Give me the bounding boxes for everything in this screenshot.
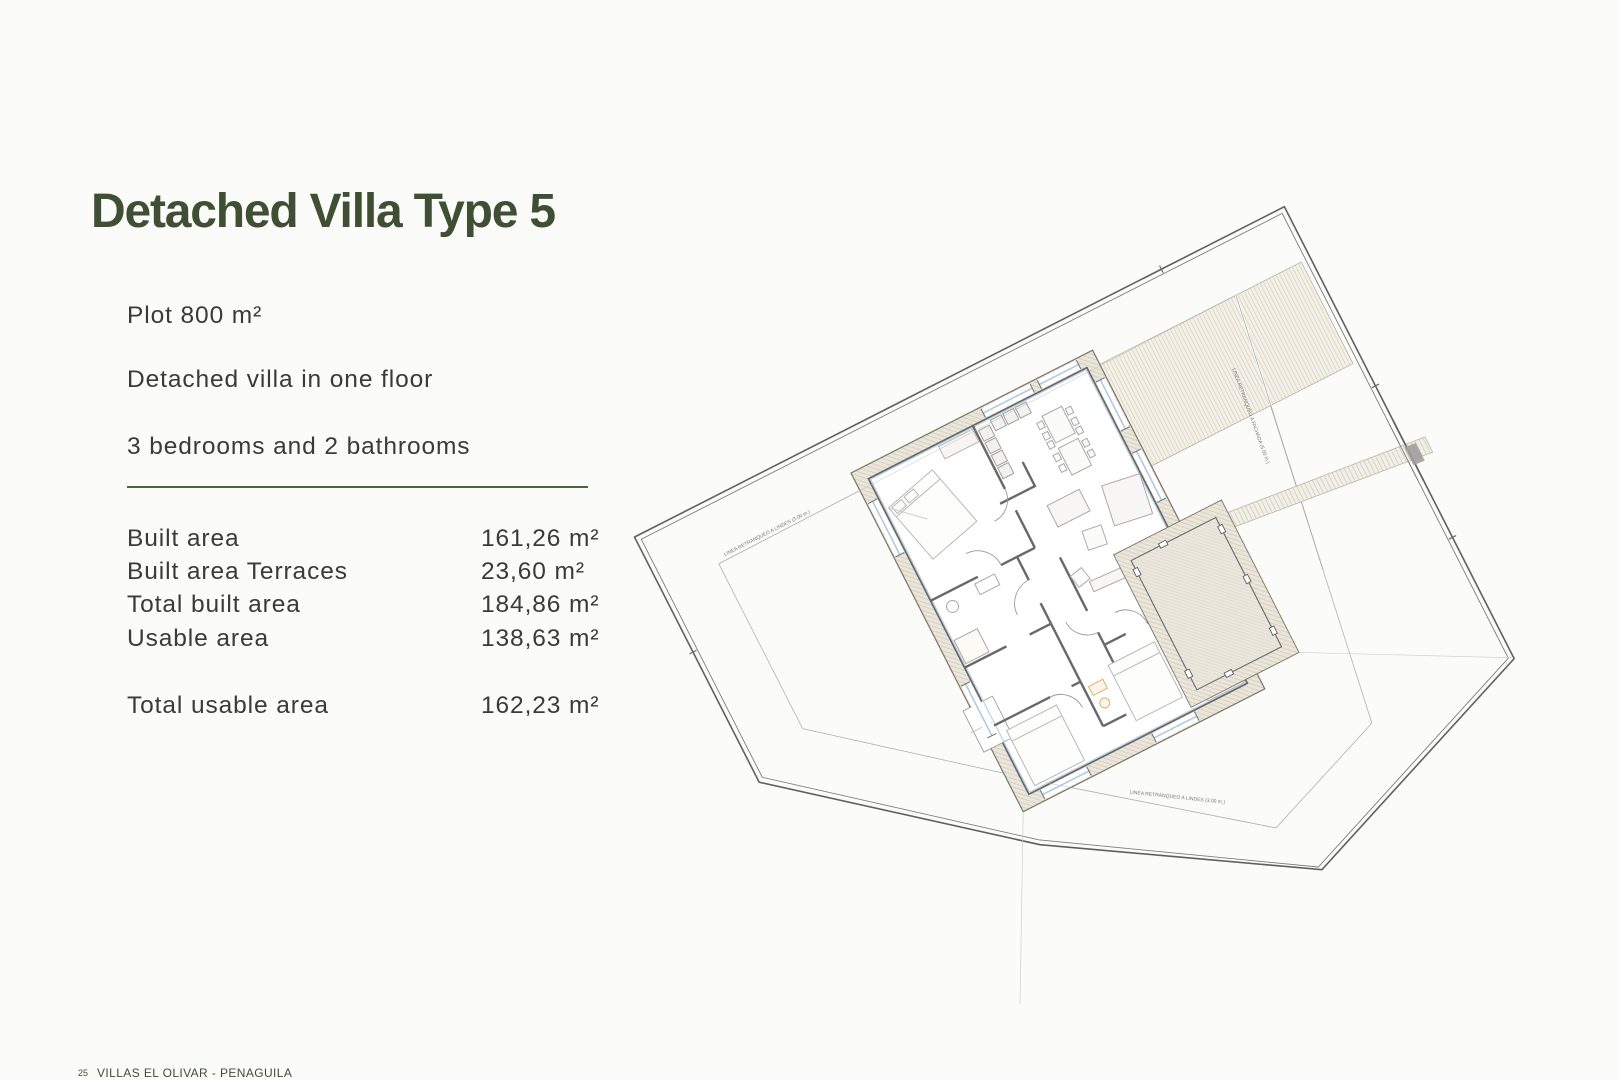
svg-text:LINEA RETRANQUEO A LINDES (3.0: LINEA RETRANQUEO A LINDES (3.00 m.) (1129, 790, 1225, 806)
svg-text:LINEA RETRANQUEO A LINDES (3.0: LINEA RETRANQUEO A LINDES (3.00 m.) (723, 509, 811, 558)
